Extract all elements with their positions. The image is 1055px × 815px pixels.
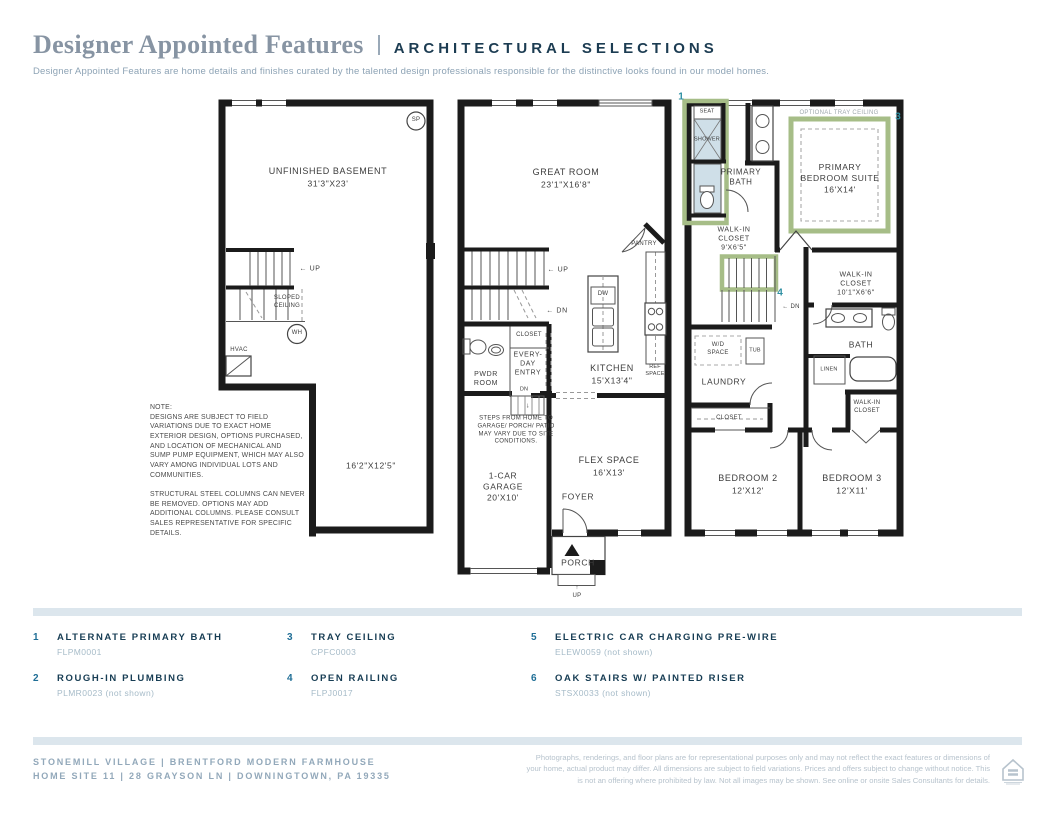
bedroom3-label: BEDROOM 3	[822, 473, 881, 485]
first-dn-label: ← DN	[546, 306, 567, 315]
feature-code: STSX0033 (not shown)	[555, 688, 746, 698]
feature-code: FLPM0001	[57, 647, 223, 657]
entry-dn-label: DN	[520, 386, 528, 393]
tray-ceiling-label: OPTIONAL TRAY CEILING	[799, 110, 878, 118]
porch-up-label: ↑ UP	[573, 585, 582, 601]
feature-marker-3: 3	[895, 112, 901, 123]
feature-number: 6	[531, 673, 555, 698]
bedroom3-dims: 12'X11'	[836, 485, 867, 496]
linen-label: LINEN	[820, 366, 837, 373]
tub-label: TUB	[749, 347, 761, 354]
entry-down-arrow: ↓	[526, 401, 530, 410]
basement-door-jamb	[426, 243, 435, 259]
kitchen-sink	[593, 308, 614, 326]
laundry-label: LAUNDRY	[702, 376, 747, 387]
primary-bath-label: PRIMARY BATH	[721, 168, 762, 189]
basement-room2-dims: 16'2"X12'5"	[346, 460, 396, 471]
kitchen-label: KITCHEN	[590, 363, 634, 375]
water-heater-label: WH	[292, 330, 303, 338]
feature-name: TRAY CEILING	[311, 632, 396, 643]
hall-bath-toilet	[883, 314, 895, 330]
feature-marker-4: 4	[777, 288, 783, 299]
basement-up-label: ← UP	[299, 264, 320, 273]
feature-marker-1: 1	[678, 92, 684, 103]
bath-label: BATH	[849, 339, 873, 350]
great-room-label: GREAT ROOM	[533, 167, 600, 179]
basement-room-dims: 31'3"X23'	[308, 178, 349, 189]
feature-code: FLPJ0017	[311, 688, 399, 698]
wd-space-label: W/D SPACE	[707, 342, 728, 358]
flex-space-dims: 16'X13'	[593, 467, 625, 478]
feature-item-2: 2 ROUGH-IN PLUMBING PLMR0023 (not shown)	[33, 673, 186, 698]
open-railing-highlight	[722, 257, 776, 290]
sump-pump-label: SP	[412, 117, 421, 125]
dishwasher-label: DW	[598, 291, 609, 299]
second-closet-label: CLOSET	[716, 415, 742, 423]
footer-disclaimer: Photographs, renderings, and floor plans…	[525, 752, 990, 786]
feature-item-4: 4 OPEN RAILING FLPJ0017	[287, 673, 399, 698]
shower-label: SHOWER	[694, 136, 720, 143]
first-up-label: ← UP	[547, 265, 568, 274]
feature-number: 3	[287, 632, 311, 657]
divider-bar-bottom	[33, 737, 1022, 745]
bedroom2-dims: 12'X12'	[732, 485, 764, 496]
bedroom2-label: BEDROOM 2	[718, 473, 777, 485]
porch-steps	[558, 575, 595, 586]
great-room-dims: 23'1"X16'8"	[541, 179, 591, 190]
kitchen-dims: 15'X13'4"	[592, 375, 633, 386]
feature-name: OAK STAIRS W/ PAINTED RISER	[555, 673, 746, 684]
feature-item-6: 6 OAK STAIRS W/ PAINTED RISER STSX0033 (…	[531, 673, 746, 698]
feature-item-5: 5 ELECTRIC CAR CHARGING PRE-WIRE ELEW005…	[531, 632, 778, 657]
pantry-label: PANTRY	[631, 241, 657, 249]
feature-number: 1	[33, 632, 57, 657]
primary-suite-dims: 16'X14'	[824, 184, 856, 195]
walkin-closet-bed3-label: WALK-IN CLOSET	[854, 400, 881, 416]
garage-label: 1-CAR GARAGE 20'X10'	[483, 470, 523, 503]
feature-name: ROUGH-IN PLUMBING	[57, 673, 186, 684]
equal-housing-logo	[1000, 757, 1026, 790]
powder-sink	[489, 345, 504, 356]
second-dn-label: ← DN	[782, 304, 800, 312]
flex-space-label: FLEX SPACE	[579, 455, 640, 467]
seat-label: SEAT	[700, 108, 715, 115]
hvac-label: HVAC	[230, 347, 247, 355]
basement-note: NOTE: DESIGNS ARE SUBJECT TO FIELD VARIA…	[150, 403, 315, 538]
footer-address-line: HOME SITE 11 | 28 GRAYSON LN | DOWNINGTO…	[33, 771, 391, 781]
feature-name: OPEN RAILING	[311, 673, 399, 684]
footer-community-line: STONEMILL VILLAGE | BRENTFORD MODERN FAR…	[33, 757, 391, 767]
sloped-ceiling-label: SLOPED CEILING	[274, 295, 300, 311]
walkin-closet-hall-label: WALK-IN CLOSET 10'1"X6'6"	[837, 270, 875, 297]
walkin-closet-primary-label: WALK-IN CLOSET 9'X6'5"	[717, 225, 750, 252]
foyer-label: FOYER	[562, 491, 594, 502]
feature-code: CPFC0003	[311, 647, 396, 657]
everyday-entry-label: EVERY- DAY ENTRY	[514, 350, 543, 377]
steps-note: STEPS FROM HOME TO GARAGE/ PORCH/ PATIO …	[477, 415, 554, 446]
basement-room-label: UNFINISHED BASEMENT	[269, 166, 387, 178]
feature-number: 4	[287, 673, 311, 698]
powder-room-label: PWDR ROOM	[474, 370, 498, 388]
first-closet-label: CLOSET	[516, 332, 542, 340]
range	[645, 303, 666, 335]
hall-bath-vanity	[826, 309, 872, 327]
feature-code: PLMR0023 (not shown)	[57, 688, 186, 698]
footer-community-block: STONEMILL VILLAGE | BRENTFORD MODERN FAR…	[33, 757, 391, 785]
primary-suite-label: PRIMARY BEDROOM SUITE	[800, 162, 879, 184]
feature-number: 2	[33, 673, 57, 698]
feature-name: ALTERNATE PRIMARY BATH	[57, 632, 223, 643]
brochure-page: Designer Appointed Features ARCHITECTURA…	[0, 0, 1055, 815]
bathtub	[850, 357, 896, 381]
feature-code: ELEW0059 (not shown)	[555, 647, 778, 657]
porch-label: PORCH	[561, 557, 595, 568]
ref-space-label: REF SPACE	[645, 364, 664, 378]
feature-item-3: 3 TRAY CEILING CPFC0003	[287, 632, 396, 657]
feature-name: ELECTRIC CAR CHARGING PRE-WIRE	[555, 632, 778, 643]
feature-number: 5	[531, 632, 555, 657]
feature-item-1: 1 ALTERNATE PRIMARY BATH FLPM0001	[33, 632, 223, 657]
divider-bar-top	[33, 608, 1022, 616]
toilet	[701, 192, 714, 209]
bifold-door	[852, 430, 880, 443]
